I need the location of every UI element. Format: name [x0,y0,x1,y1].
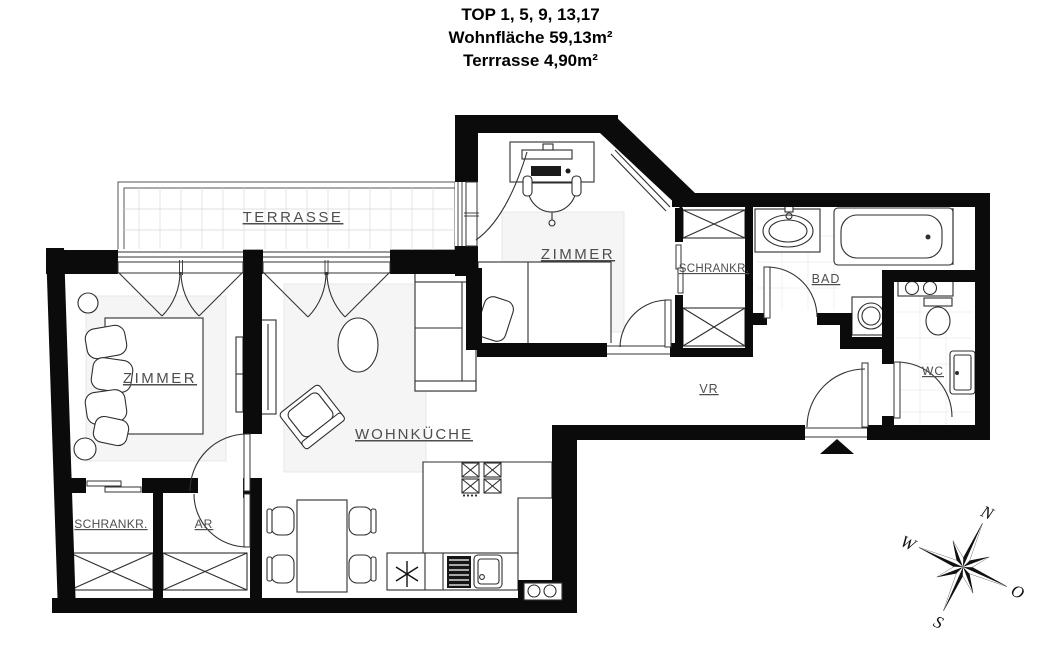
compass-north-label: N [977,501,998,524]
nightstand-icon [78,293,98,313]
floor-plan-drawing: TERRASSE ZIMMER ZIMMER WOHNKÜCHE SCHRANK… [0,0,1061,645]
desk-icon [510,142,594,182]
living-kitchen-label: WOHNKÜCHE [355,425,473,443]
single-bed-icon [474,262,611,348]
wc-label: WC [922,364,944,378]
chair-icon [349,507,372,535]
floor-plan-page: TOP 1, 5, 9, 13,17 Wohnfläche 59,13m² Te… [0,0,1061,645]
bedroom-left-label: ZIMMER [123,370,197,387]
outer-wall-bottom [52,598,577,613]
coffee-table-icon [338,318,378,372]
outer-wall-top [455,115,618,133]
compass-west-label: W [898,531,920,555]
toilet-icon [924,298,952,335]
outer-wall-right [975,193,990,440]
entrance-triangle-icon [820,439,854,454]
vent-box-kitchen [524,583,562,600]
kitchen-counter [387,462,552,590]
plan-title: TOP 1, 5, 9, 13,17 [0,3,1061,26]
plan-header: TOP 1, 5, 9, 13,17 Wohnfläche 59,13m² Te… [0,3,1061,72]
monitor-icon [522,150,572,159]
bedroom-top-label: ZIMMER [541,246,615,263]
chair-icon [349,555,372,583]
sliding-door-closet-bottom [86,478,142,493]
terrace-label: TERRASSE [243,209,344,226]
outer-wall-left [46,248,76,613]
compass-star-highlights [900,504,1027,631]
dining-table-icon [297,500,347,592]
closet-bottom-label: SCHRANKR. [74,517,147,531]
dining-table-set [267,500,376,592]
wardrobe-icon [70,553,153,590]
window-bedroom-top [455,182,479,246]
vent-shaft-icon [898,281,953,296]
wc-cabinet-icon [950,351,975,394]
entrance-door [805,363,868,454]
hallway-label: VR [699,382,718,396]
bathroom-sink-icon [755,204,820,252]
chair-icon [271,507,294,535]
mouse-icon [566,169,571,174]
window-bedroom-left [118,249,243,276]
closet-top-label: SCHRANKR. [679,263,749,275]
compass-south-label: S [931,612,947,633]
nightstand-icon [74,438,96,460]
wardrobe-icon [163,553,247,590]
chair-icon [271,555,294,583]
window-living [263,249,390,276]
wardrobe-icon [683,210,745,238]
compass-east-label: O [1008,581,1027,603]
keyboard-icon [531,166,561,176]
bathtub-icon [834,208,953,265]
kitchen-sink-icon [447,555,502,588]
bathroom-label: BAD [812,272,841,286]
compass-rose: N O S W [873,477,1051,645]
door-bathroom [764,267,817,325]
wardrobe-icon [683,308,745,346]
living-area-text: Wohnfläche 59,13m² [0,26,1061,49]
storage-label: AR [195,517,214,531]
terrace-area-text: Terrrasse 4,90m² [0,49,1061,72]
